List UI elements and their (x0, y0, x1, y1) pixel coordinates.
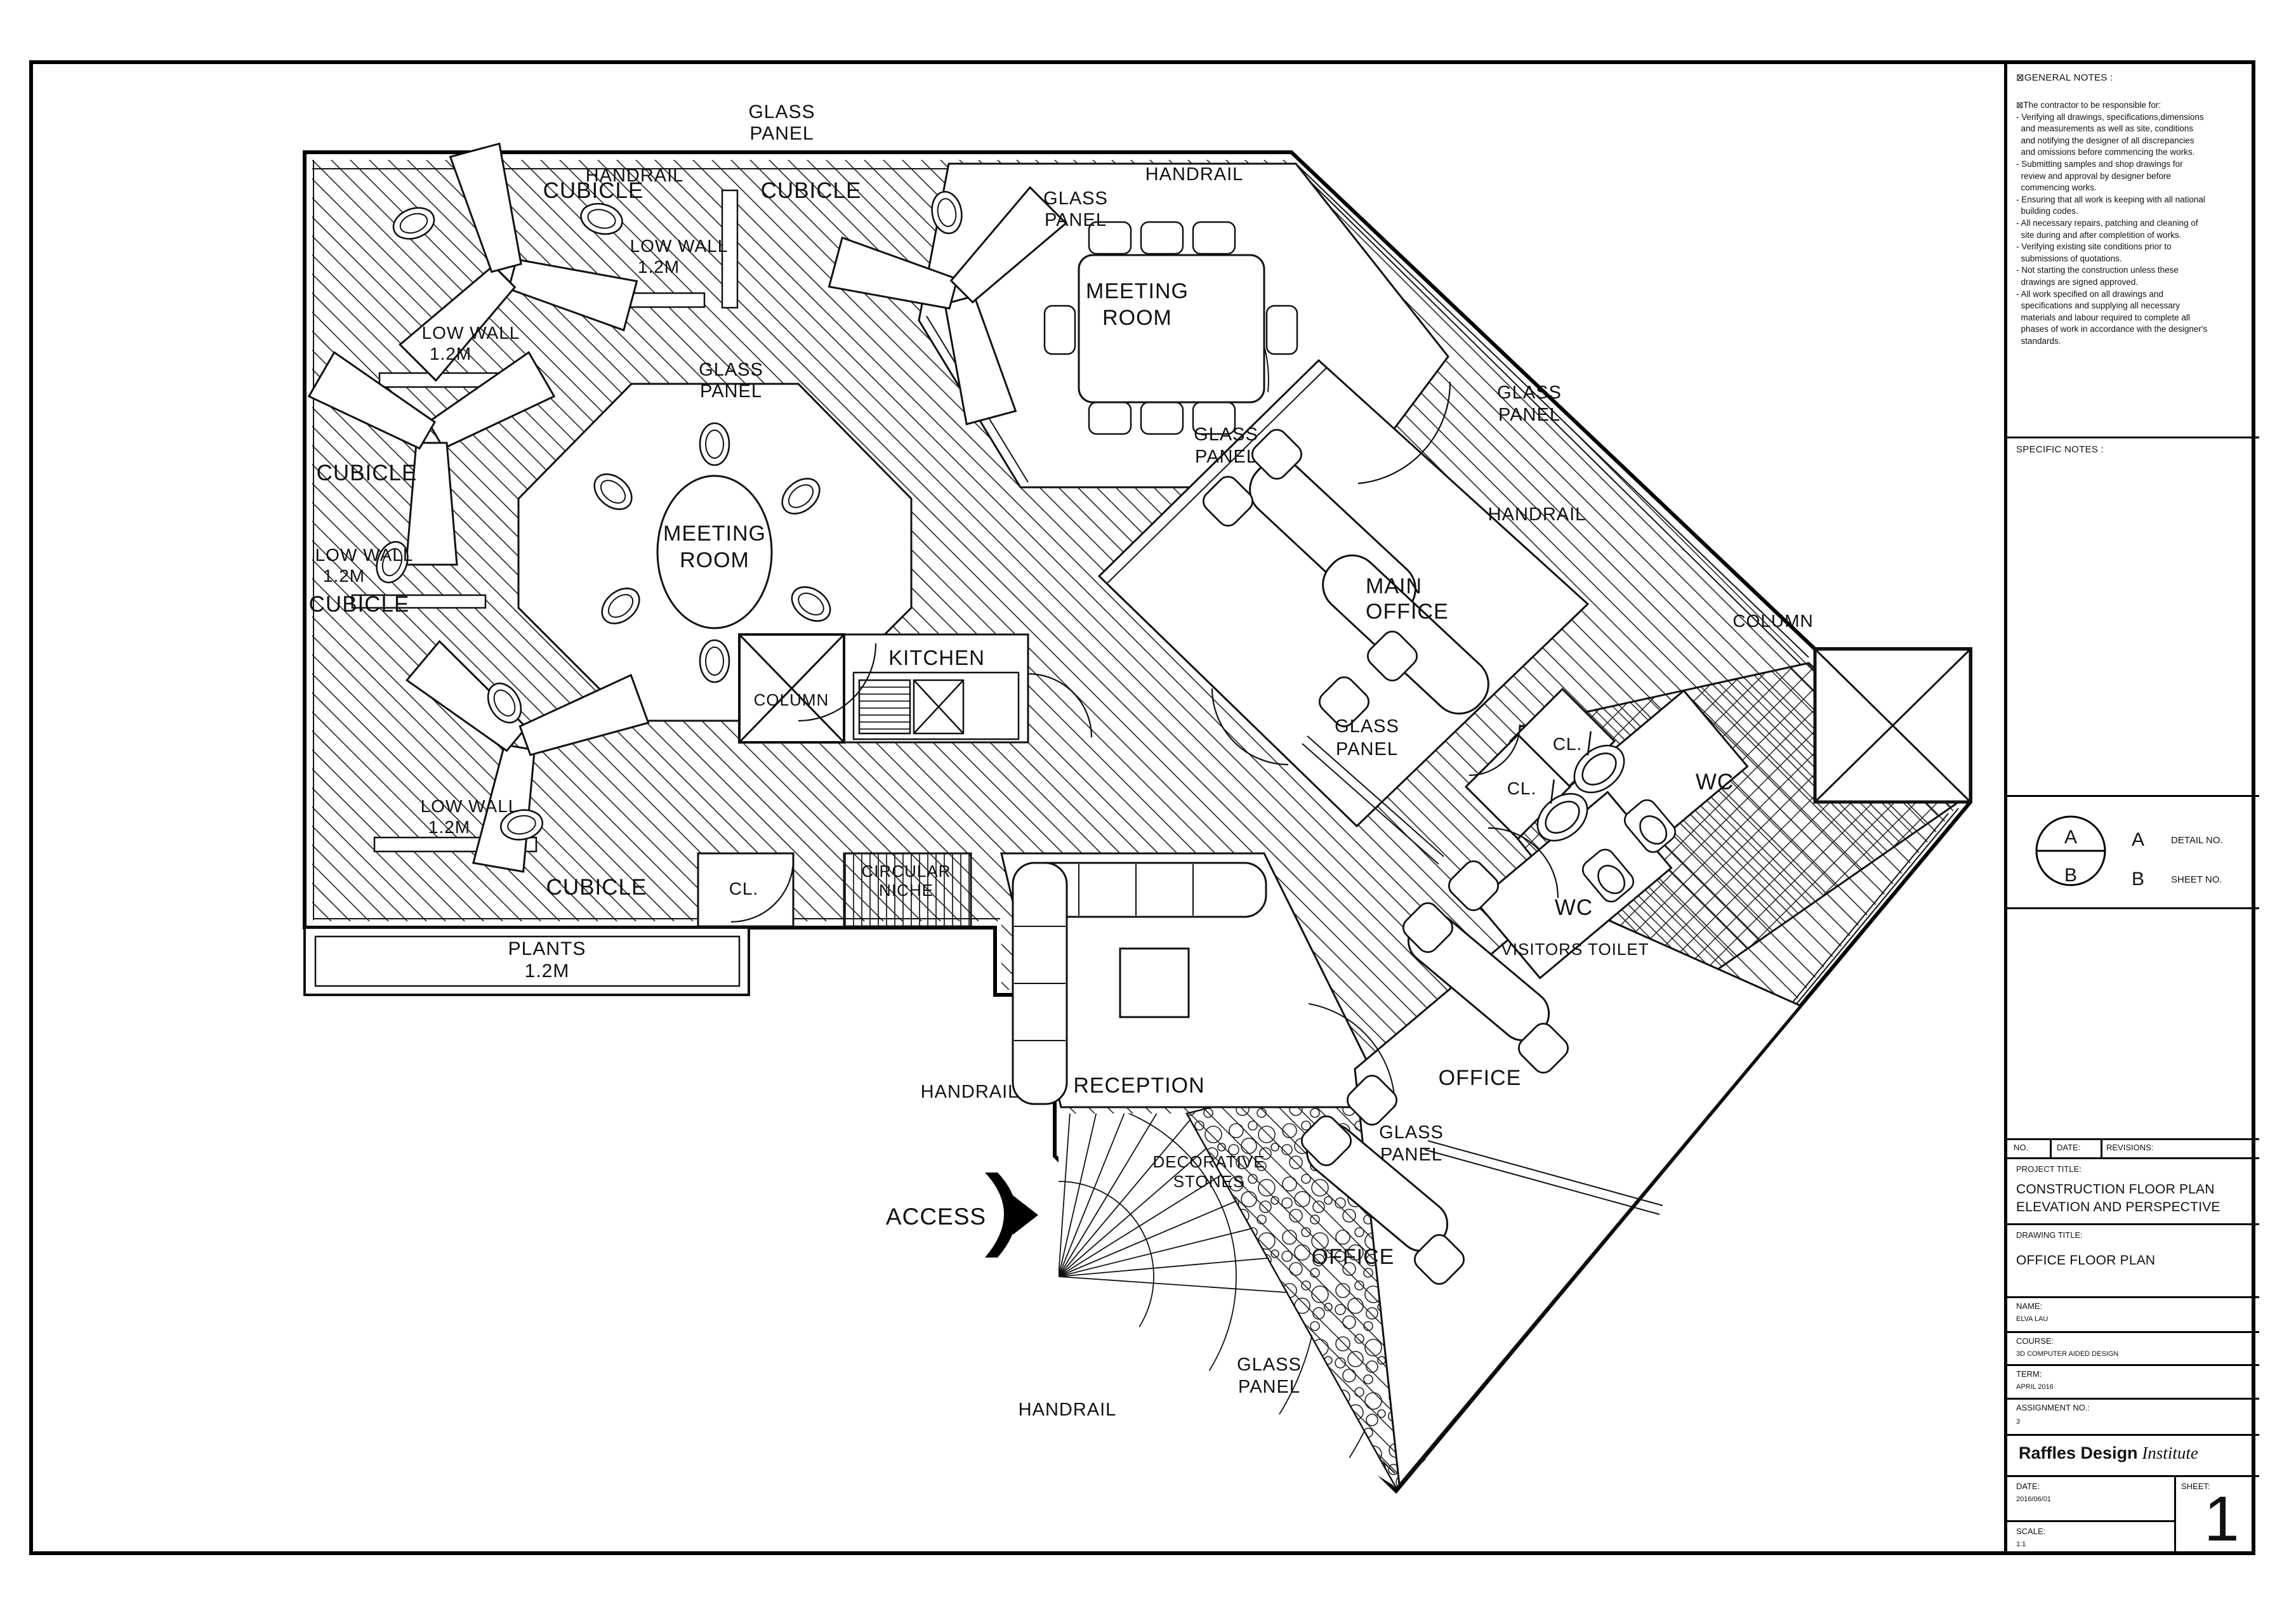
plan-label: HANDRAIL (1019, 1400, 1117, 1420)
revision-header-row: NO. DATE: REVISIONS: (2007, 1138, 2259, 1157)
plan-label: VISITORS TOILET (1501, 940, 1649, 959)
detail-legend: A B A DETAIL NO. B SHEET NO. (2007, 795, 2259, 907)
plan-label: PANEL (749, 123, 814, 144)
notes-title-panel: ⊠GENERAL NOTES : ⊠The contractor to be r… (2004, 60, 2259, 1555)
divider (2007, 1398, 2259, 1400)
plan-label: ROOM (680, 548, 749, 572)
legend-b: B (2132, 869, 2144, 890)
scale-label: SCALE: (2016, 1527, 2045, 1536)
date-label: DATE: (2016, 1482, 2040, 1491)
plan-label: GLASS (1497, 383, 1562, 403)
plan-label: HANDRAIL (1488, 504, 1587, 525)
plan-label: PANEL (1498, 405, 1560, 425)
plan-label: MAIN (1366, 574, 1422, 598)
plan-label: NICHE (879, 881, 934, 900)
plan-label: WC (1696, 770, 1734, 794)
divider (2007, 907, 2259, 909)
plan-label: GLASS (1379, 1122, 1444, 1143)
plan-label: GLASS (1043, 188, 1108, 209)
plan-label: 1.2M (525, 961, 570, 982)
plan-label: PLANTS (508, 938, 586, 959)
rev-revisions-header: REVISIONS: (2106, 1143, 2153, 1152)
plan-label: GLASS (699, 360, 763, 380)
divider (2007, 1331, 2259, 1333)
plan-label: PANEL (700, 381, 762, 402)
plan-label: 1.2M (638, 257, 680, 277)
legend-a: A (2132, 829, 2144, 850)
assignment-value: 3 (2016, 1418, 2020, 1426)
rev-date-header: DATE: (2057, 1143, 2080, 1152)
plan-label: GLASS (1237, 1355, 1302, 1375)
legend-detail-letter: A (2064, 827, 2077, 848)
legend-sheet-letter: B (2064, 865, 2077, 886)
assignment-label: ASSIGNMENT NO.: (2016, 1403, 2090, 1412)
plan-label: LOW WALL (421, 796, 519, 816)
plan-label: COLUMN (754, 690, 829, 709)
plan-label: PANEL (1238, 1377, 1300, 1397)
specific-notes-title: SPECIFIC NOTES : (2016, 444, 2104, 455)
plan-label: CL. (1507, 779, 1537, 798)
plan-label: CL. (1553, 734, 1583, 754)
plan-label: MEETING (1086, 279, 1189, 303)
term-value: APRIL 2016 (2016, 1383, 2054, 1391)
legend-detail-label: DETAIL NO. (2171, 835, 2223, 846)
floor-plan: GLASSPANELHANDRAILCUBICLECUBICLEHANDRAIL… (0, 0, 2296, 1623)
general-notes-body: ⊠The contractor to be responsible for: -… (2016, 100, 2256, 347)
course-label: COURSE: (2016, 1336, 2054, 1346)
plan-label: PANEL (1336, 739, 1398, 759)
plan-label: 1.2M (323, 566, 365, 586)
institute-italic: Institute (2138, 1443, 2198, 1462)
divider (2007, 1475, 2259, 1477)
divider (2007, 1364, 2259, 1366)
plan-label: CL. (729, 879, 759, 898)
divider (2007, 1434, 2259, 1436)
plan-label: RECEPTION (1073, 1074, 1204, 1098)
plan-label: LOW WALL (422, 323, 520, 343)
plan-label: PANEL (1045, 210, 1107, 230)
drawing-sheet: GLASSPANELHANDRAILCUBICLECUBICLEHANDRAIL… (0, 0, 2296, 1623)
plan-label: PANEL (1380, 1145, 1442, 1165)
plan-label: PANEL (1195, 447, 1257, 467)
plan-label: OFFICE (1366, 600, 1449, 624)
plan-label: GLASS (1335, 716, 1399, 737)
plan-label: GLASS (1194, 424, 1258, 445)
plan-label: OFFICE (1439, 1066, 1522, 1090)
drawing-title: OFFICE FLOOR PLAN (2016, 1252, 2155, 1269)
divider (2007, 1157, 2259, 1159)
plan-label: LOW WALL (630, 236, 729, 256)
date-value: 2016/06/01 (2016, 1495, 2051, 1503)
plan-label: CUBICLE (761, 178, 862, 203)
plan-label: CIRCULAR (862, 862, 951, 881)
scale-value: 1:1 (2016, 1541, 2026, 1548)
rev-no-header: NO. (2014, 1143, 2028, 1152)
divider (2007, 1296, 2259, 1298)
plan-label: STONES (1173, 1172, 1244, 1191)
plan-label: COLUMN (1732, 611, 1813, 631)
plan-label: OFFICE (1312, 1245, 1395, 1269)
plan-label: CUBICLE (546, 875, 647, 900)
kitchen-counter (854, 673, 1019, 739)
drawing-title-label: DRAWING TITLE: (2016, 1230, 2083, 1240)
plan-label: HANDRAIL (921, 1082, 1019, 1102)
legend-sheet-label: SHEET NO. (2171, 874, 2222, 885)
institute-bold: Raffles Design (2019, 1443, 2138, 1462)
plan-label: CUBICLE (543, 178, 644, 203)
plan-label: 1.2M (430, 344, 472, 364)
divider (2007, 1223, 2259, 1225)
access-arrow (985, 1173, 1038, 1258)
plan-label: CUBICLE (309, 592, 410, 617)
plan-label: MEETING (663, 522, 766, 546)
divider (2007, 1520, 2174, 1522)
sheet-number: 1 (2204, 1483, 2240, 1556)
plan-label: KITCHEN (888, 646, 985, 669)
plan-label: WC (1555, 895, 1593, 920)
plan-label: ROOM (1102, 306, 1172, 330)
course-value: 3D COMPUTER AIDED DESIGN (2016, 1350, 2118, 1358)
plan-label: ACCESS (886, 1204, 986, 1230)
plan-label: CUBICLE (317, 461, 418, 485)
plan-label: DECORATIVE (1152, 1152, 1265, 1171)
plan-label: GLASS (748, 102, 815, 122)
term-label: TERM: (2016, 1369, 2042, 1379)
plan-label: 1.2M (428, 817, 470, 837)
project-title-label: PROJECT TITLE: (2016, 1164, 2082, 1174)
divider (2007, 437, 2259, 438)
project-title-line2: ELEVATION AND PERSPECTIVE (2016, 1199, 2220, 1216)
institute-name: Raffles Design Institute (2019, 1443, 2198, 1463)
plan-label: LOW WALL (315, 545, 414, 565)
name-value: ELVA LAU (2016, 1315, 2048, 1323)
divider (2174, 1475, 2176, 1555)
name-label: NAME: (2016, 1301, 2042, 1311)
general-notes-title: ⊠GENERAL NOTES : (2016, 72, 2113, 83)
project-title-line1: CONSTRUCTION FLOOR PLAN (2016, 1181, 2215, 1198)
plan-label: HANDRAIL (1145, 164, 1244, 185)
